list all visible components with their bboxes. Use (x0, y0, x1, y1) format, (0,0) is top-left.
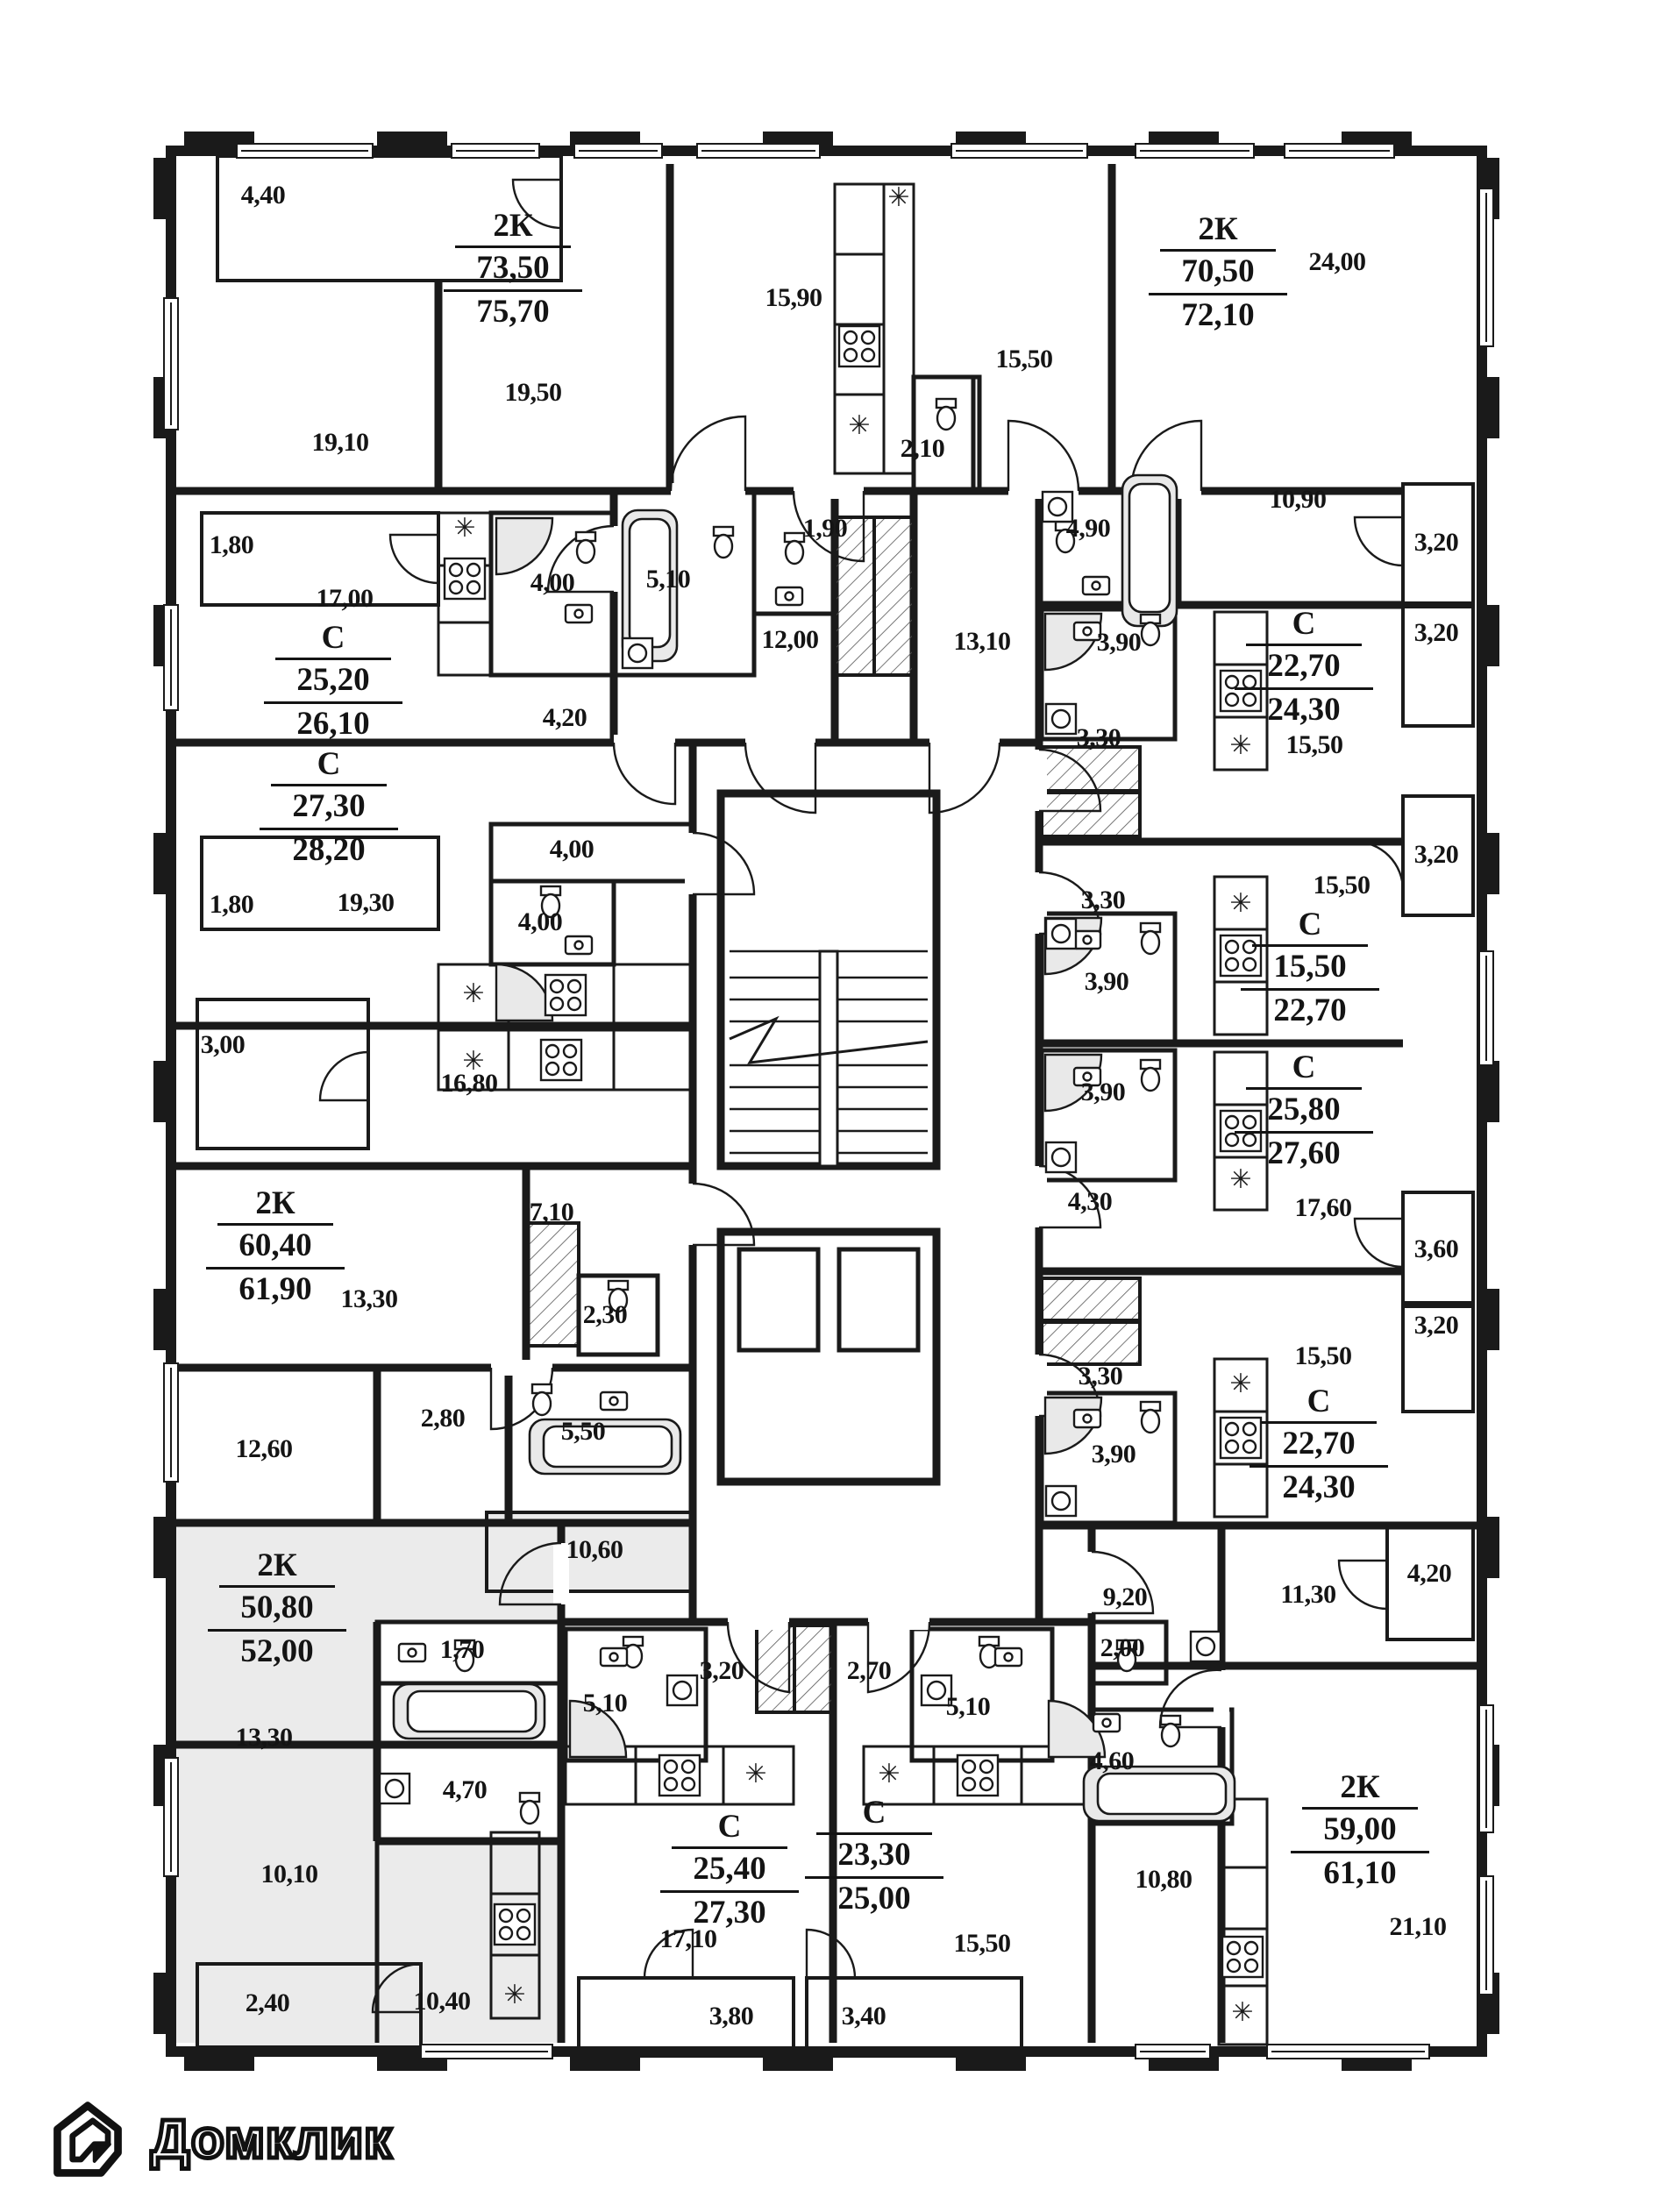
room-area-label: 9,20 (1103, 1583, 1148, 1612)
room-area-label: 19,30 (338, 888, 395, 918)
apartment-area-total: 26,10 (264, 706, 402, 743)
fridge-icon: ✳ (503, 1981, 525, 2009)
room-area-label: 13,30 (341, 1284, 398, 1314)
room-area-label: 5,50 (561, 1417, 606, 1447)
room-area-label: 3,20 (700, 1656, 744, 1686)
room-area-label: 10,60 (566, 1535, 623, 1565)
apartment-area-total: 61,10 (1291, 1855, 1429, 1892)
room-area-label: 15,50 (1295, 1341, 1352, 1371)
washing-machine-icon (1046, 704, 1076, 734)
room-area-label: 3,90 (1097, 628, 1142, 658)
toilet-icon (714, 527, 733, 558)
apartment-label[interactable]: 2К70,5072,10 (1149, 213, 1287, 334)
fridge-icon: ✳ (462, 979, 484, 1008)
apartment-type: 2К (1291, 1771, 1429, 1804)
apartment-type: С (1249, 1385, 1388, 1419)
divider (672, 1846, 787, 1849)
room-area-label: 4,70 (443, 1775, 488, 1805)
room-area-label: 10,10 (261, 1860, 318, 1889)
room-area-label: 4,00 (550, 835, 594, 864)
apartment-area-main: 22,70 (1249, 1426, 1388, 1462)
room-area-label: 3,20 (1414, 840, 1459, 870)
toilet-icon (1141, 1060, 1160, 1091)
divider (260, 828, 398, 830)
sink-icon (566, 605, 592, 622)
divider (660, 1890, 799, 1893)
room-area-label: 3,40 (842, 2002, 886, 2031)
room-area-label: 3,00 (201, 1030, 246, 1060)
room-area-label: 3,60 (1414, 1234, 1459, 1264)
apartment-type: С (1241, 908, 1379, 942)
apartment-type: 2К (444, 210, 582, 243)
toilet-icon (1141, 1402, 1160, 1433)
toilet-icon (520, 1793, 539, 1824)
room-area-label: 4,20 (1407, 1559, 1452, 1589)
divider (206, 1267, 345, 1270)
apartment-label[interactable]: 2К73,5075,70 (444, 210, 582, 331)
divider (805, 1876, 943, 1879)
fridge-icon: ✳ (453, 514, 475, 543)
apartment-area-total: 75,70 (444, 294, 582, 331)
stove-icon (839, 326, 879, 366)
room-area-label: 2,10 (901, 434, 945, 464)
brand-footer: Домклик (46, 2097, 392, 2181)
apartment-type: С (805, 1796, 943, 1830)
stove-icon (545, 975, 586, 1015)
washing-machine-icon (1191, 1632, 1221, 1661)
room-area-label: 3,20 (1414, 528, 1459, 558)
shower-icon (496, 518, 552, 574)
floor-plan-page: ✳✳ ✳✳ ✳✳ ✳✳ ✳✳ ✳✳ ✳ 4,4019,5015,9019,105… (0, 0, 1666, 2212)
room-area-label: 7,10 (530, 1198, 574, 1227)
room-area-label: 4,60 (1090, 1746, 1135, 1776)
room-area-label: 3,30 (1079, 1362, 1123, 1391)
room-area-label: 3,30 (1081, 886, 1126, 915)
apartment-area-main: 70,50 (1149, 253, 1287, 290)
divider (1246, 644, 1362, 646)
apartment-area-main: 50,80 (208, 1590, 346, 1626)
apartment-area-total: 52,00 (208, 1633, 346, 1670)
stove-icon (495, 1904, 535, 1945)
stove-icon (659, 1755, 700, 1796)
apartment-type: С (260, 748, 398, 781)
room-area-label: 4,90 (1066, 514, 1111, 544)
elevator-core (721, 1232, 936, 1482)
room-area-label: 19,10 (312, 428, 369, 458)
apartment-label[interactable]: С27,3028,20 (260, 748, 398, 869)
divider (455, 245, 571, 248)
sink-icon (566, 936, 592, 954)
apartment-area-main: 22,70 (1235, 648, 1373, 685)
divider (1249, 1465, 1388, 1468)
room-area-label: 19,50 (505, 378, 562, 408)
apartment-type: 2К (1149, 213, 1287, 246)
stair-core (721, 793, 936, 1166)
fridge-icon: ✳ (744, 1760, 766, 1789)
divider (1261, 1421, 1377, 1424)
bathtub-icon (1122, 475, 1177, 626)
apartment-label[interactable]: С25,4027,30 (660, 1810, 799, 1931)
room-area-label: 3,20 (1414, 618, 1459, 648)
room-area-label: 15,90 (765, 283, 822, 313)
divider (217, 1223, 333, 1226)
toilet-icon (1141, 923, 1160, 954)
divider (1302, 1807, 1418, 1810)
room-area-label: 4,00 (518, 907, 563, 937)
divider (1241, 988, 1379, 991)
room-area-label: 17,60 (1295, 1193, 1352, 1223)
room-area-label: 10,90 (1270, 485, 1327, 515)
apartment-type: 2К (206, 1187, 345, 1220)
room-area-label: 10,40 (414, 1987, 471, 2016)
sink-icon (1074, 931, 1100, 949)
apartment-type: С (660, 1810, 799, 1844)
room-area-label: 1,70 (440, 1635, 485, 1665)
divider (219, 1585, 335, 1588)
wardrobe-hatch (528, 1223, 579, 1346)
room-area-label: 5,10 (946, 1692, 991, 1722)
room-area-label: 3,90 (1085, 967, 1129, 997)
room-area-label: 15,50 (1314, 871, 1371, 900)
sink-icon (601, 1392, 627, 1410)
apartment-area-total: 61,90 (206, 1271, 345, 1308)
room-area-label: 2,30 (583, 1300, 628, 1330)
apartment-area-total: 24,30 (1249, 1469, 1388, 1506)
washing-machine-icon (667, 1675, 697, 1705)
apartment-label[interactable]: С15,5022,70 (1241, 908, 1379, 1029)
fridge-icon: ✳ (848, 411, 870, 440)
room-area-label: 2,00 (1100, 1633, 1145, 1663)
sink-icon (995, 1648, 1022, 1666)
apartment-area-total: 28,20 (260, 832, 398, 869)
toilet-icon (1161, 1716, 1180, 1746)
divider (816, 1832, 932, 1835)
room-area-label: 15,50 (996, 345, 1053, 374)
apartment-label[interactable]: 2К59,0061,10 (1291, 1771, 1429, 1892)
apartment-type: 2К (208, 1549, 346, 1583)
divider (208, 1629, 346, 1632)
room-area-label: 17,00 (317, 584, 374, 614)
room-area-label: 3,90 (1081, 1078, 1126, 1107)
apartment-area-main: 23,30 (805, 1837, 943, 1874)
room-area-label: 3,20 (1414, 1311, 1459, 1341)
apartment-area-main: 25,20 (264, 662, 402, 699)
sink-icon (776, 587, 802, 605)
apartment-area-total: 27,30 (660, 1895, 799, 1931)
washing-machine-icon (1046, 1486, 1076, 1516)
apartment-label[interactable]: С22,7024,30 (1249, 1385, 1388, 1506)
fridge-icon: ✳ (1229, 1369, 1251, 1398)
apartment-label[interactable]: 2К50,8052,00 (208, 1549, 346, 1670)
apartment-area-total: 27,60 (1235, 1135, 1373, 1172)
room-area-label: 24,00 (1309, 247, 1366, 277)
apartment-area-main: 25,40 (660, 1851, 799, 1888)
stove-icon (958, 1755, 998, 1796)
apartment-label[interactable]: 2К60,4061,90 (206, 1187, 345, 1308)
sink-icon (601, 1648, 627, 1666)
room-area-label: 3,90 (1092, 1440, 1136, 1469)
divider (1235, 687, 1373, 690)
apartment-area-main: 60,40 (206, 1227, 345, 1264)
room-area-label: 16,80 (441, 1069, 498, 1099)
domclick-logo-icon (46, 2097, 130, 2181)
sink-icon (1074, 1410, 1100, 1427)
divider (1160, 249, 1276, 252)
room-area-label: 4,30 (1068, 1187, 1113, 1217)
apartment-label[interactable]: С22,7024,30 (1235, 608, 1373, 729)
divider (1252, 944, 1368, 947)
room-area-label: 15,50 (954, 1929, 1011, 1959)
washing-machine-icon (1046, 919, 1076, 949)
divider (444, 289, 582, 292)
room-area-label: 5,10 (583, 1689, 628, 1718)
sink-icon (1093, 1714, 1120, 1732)
toilet-icon (1141, 615, 1160, 645)
divider (1235, 1131, 1373, 1134)
apartment-area-main: 73,50 (444, 250, 582, 287)
apartment-type: С (264, 622, 402, 655)
fridge-icon: ✳ (887, 183, 909, 212)
room-area-label: 10,80 (1136, 1865, 1193, 1895)
stove-icon (1222, 1937, 1263, 1977)
apartment-label[interactable]: С25,2026,10 (264, 622, 402, 743)
apartment-type: С (1235, 1051, 1373, 1085)
fridge-icon: ✳ (878, 1760, 900, 1789)
toilet-icon (785, 533, 804, 564)
apartment-area-main: 25,80 (1235, 1092, 1373, 1128)
room-area-label: 2,80 (421, 1404, 466, 1433)
toilet-icon (936, 399, 956, 430)
sink-icon (1083, 577, 1109, 594)
toilet-icon (532, 1384, 552, 1415)
apartment-area-main: 15,50 (1241, 949, 1379, 985)
toilet-icon (576, 532, 595, 563)
bathtub-icon (394, 1684, 545, 1739)
divider (1149, 293, 1287, 295)
room-area-label: 1,80 (210, 890, 254, 920)
divider (1291, 1851, 1429, 1853)
room-area-label: 1,80 (210, 530, 254, 560)
washing-machine-icon (623, 638, 652, 668)
room-area-label: 15,50 (1286, 730, 1343, 760)
shower-icon (496, 964, 552, 1021)
brand-name: Домклик (151, 2109, 392, 2171)
washing-machine-icon (1046, 1142, 1076, 1172)
room-area-label: 3,80 (709, 2002, 754, 2031)
apartment-label[interactable]: С23,3025,00 (805, 1796, 943, 1917)
apartment-area-total: 72,10 (1149, 297, 1287, 334)
room-area-label: 3,30 (1077, 723, 1121, 753)
room-area-label: 2,40 (246, 1988, 290, 2018)
room-area-label: 2,70 (847, 1656, 892, 1686)
room-area-label: 1,90 (803, 514, 848, 544)
stove-icon (541, 1040, 581, 1080)
room-area-label: 13,10 (954, 627, 1011, 657)
room-area-label: 11,30 (1280, 1580, 1335, 1610)
apartment-area-total: 22,70 (1241, 992, 1379, 1029)
fridge-icon: ✳ (1229, 731, 1251, 760)
apartment-type: С (1235, 608, 1373, 641)
room-area-label: 21,10 (1390, 1912, 1447, 1942)
apartment-area-main: 27,30 (260, 788, 398, 825)
room-area-label: 5,10 (646, 565, 691, 594)
room-area-label: 12,60 (236, 1434, 293, 1464)
sink-icon (399, 1644, 425, 1661)
room-area-label: 4,00 (530, 568, 575, 598)
fridge-icon: ✳ (1231, 1998, 1253, 2027)
room-area-label: 13,30 (236, 1723, 293, 1753)
room-area-label: 4,40 (241, 181, 286, 210)
room-area-label: 12,00 (762, 625, 819, 655)
stove-icon (445, 558, 485, 599)
apartment-label[interactable]: С25,8027,60 (1235, 1051, 1373, 1172)
apartment-area-total: 25,00 (805, 1881, 943, 1917)
divider (264, 701, 402, 704)
divider (275, 658, 391, 660)
washing-machine-icon (380, 1774, 409, 1803)
apartment-area-total: 24,30 (1235, 692, 1373, 729)
divider (1246, 1087, 1362, 1090)
room-area-label: 4,20 (543, 703, 587, 733)
apartment-area-main: 59,00 (1291, 1811, 1429, 1848)
divider (271, 784, 387, 786)
